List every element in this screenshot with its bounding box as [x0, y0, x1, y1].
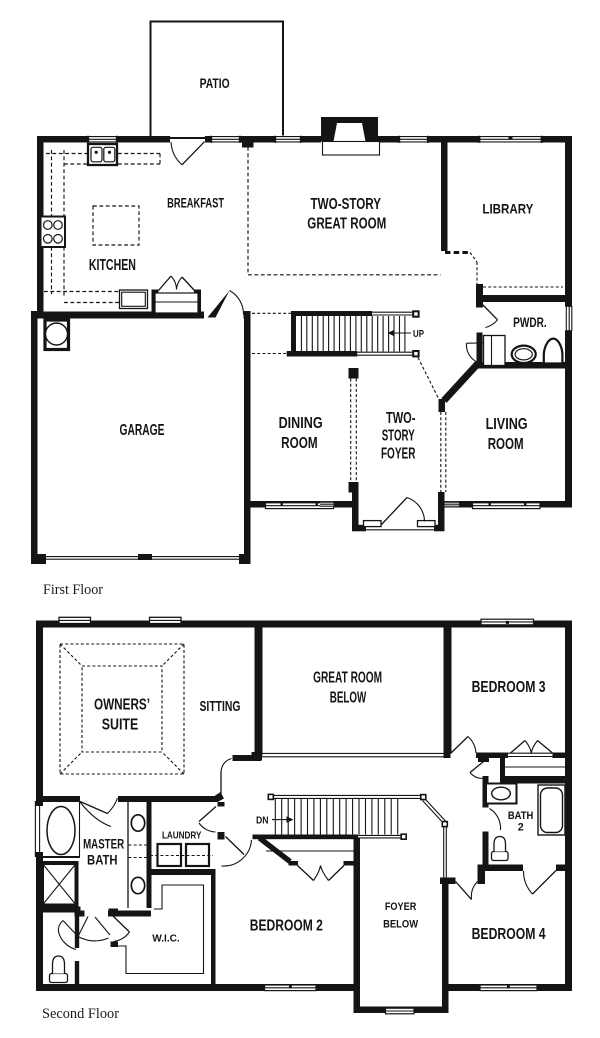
svg-text:DN: DN	[256, 816, 269, 827]
svg-text:DINING: DINING	[279, 415, 323, 432]
svg-text:SUITE: SUITE	[102, 717, 139, 734]
svg-text:PWDR.: PWDR.	[513, 315, 547, 330]
svg-text:Second Floor: Second Floor	[42, 1006, 119, 1022]
svg-text:BELOW: BELOW	[383, 919, 419, 931]
svg-text:UP: UP	[413, 329, 424, 340]
svg-text:FOYER: FOYER	[381, 445, 416, 462]
svg-text:BATH: BATH	[87, 853, 118, 868]
svg-text:TWO-: TWO-	[386, 410, 416, 427]
svg-text:MASTER: MASTER	[83, 837, 124, 852]
svg-text:OWNERS’: OWNERS’	[94, 697, 150, 714]
svg-text:2: 2	[518, 822, 524, 834]
svg-text:BATH: BATH	[508, 810, 534, 822]
svg-text:GREAT ROOM: GREAT ROOM	[307, 216, 386, 233]
svg-text:LIVING: LIVING	[486, 416, 528, 433]
svg-text:FOYER: FOYER	[385, 901, 417, 913]
svg-text:ROOM: ROOM	[488, 436, 524, 453]
svg-text:BEDROOM 2: BEDROOM 2	[250, 918, 323, 935]
svg-text:PATIO: PATIO	[200, 76, 230, 91]
svg-text:W.I.C.: W.I.C.	[152, 933, 180, 945]
svg-text:TWO-STORY: TWO-STORY	[311, 196, 382, 213]
svg-text:BEDROOM 4: BEDROOM 4	[472, 926, 546, 943]
svg-text:ROOM: ROOM	[281, 435, 318, 452]
svg-text:GREAT ROOM: GREAT ROOM	[313, 670, 382, 687]
svg-text:GARAGE: GARAGE	[120, 422, 165, 439]
svg-text:LIBRARY: LIBRARY	[482, 201, 534, 217]
svg-text:STORY: STORY	[382, 428, 415, 445]
svg-text:BREAKFAST: BREAKFAST	[167, 196, 225, 211]
svg-text:First Floor: First Floor	[43, 582, 103, 598]
svg-text:LAUNDRY: LAUNDRY	[162, 830, 202, 842]
svg-text:SITTING: SITTING	[200, 698, 241, 715]
svg-text:BELOW: BELOW	[330, 690, 367, 707]
svg-text:KITCHEN: KITCHEN	[89, 257, 136, 274]
svg-text:BEDROOM 3: BEDROOM 3	[472, 679, 546, 696]
